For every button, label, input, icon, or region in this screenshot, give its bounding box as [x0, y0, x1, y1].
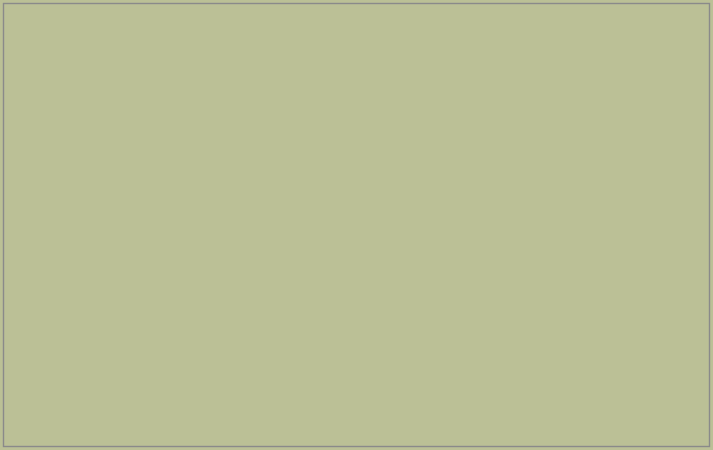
site-plan-page: UP UP MARKETING OFFICE MARKETING OFFICE — [0, 0, 713, 450]
tree-layer — [0, 0, 713, 450]
site-plan-drawing: UP UP MARKETING OFFICE MARKETING OFFICE — [0, 0, 713, 450]
tree-icon — [0, 0, 713, 450]
